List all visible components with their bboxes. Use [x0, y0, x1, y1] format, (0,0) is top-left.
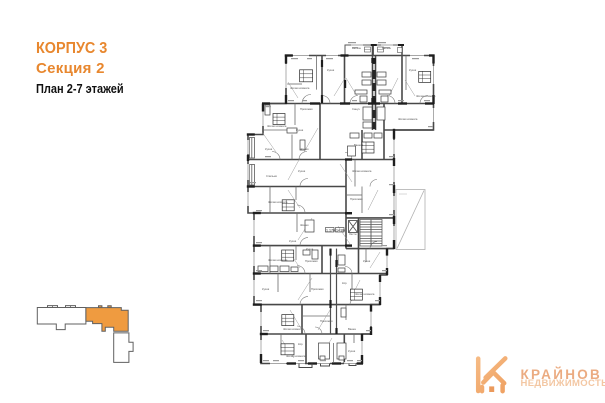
- svg-text:Прихожая: Прихожая: [320, 319, 333, 323]
- svg-text:Кухня: Кухня: [265, 147, 273, 151]
- svg-text:Жилая комната: Жилая комната: [290, 86, 310, 90]
- svg-text:Жилая: Жилая: [300, 147, 309, 151]
- svg-text:Жилая комната: Жилая комната: [398, 117, 418, 121]
- svg-text:Кухня: Кухня: [409, 68, 417, 72]
- svg-text:Кор.: Кор.: [342, 281, 348, 285]
- svg-text:Жилая комната: Жилая комната: [283, 327, 303, 331]
- svg-text:Прихожая: Прихожая: [300, 107, 313, 111]
- svg-text:Лестн.: Лестн.: [349, 232, 357, 236]
- svg-text:Кухня: Кухня: [298, 169, 306, 173]
- svg-text:Прихожая: Прихожая: [350, 197, 363, 201]
- svg-text:Кухня: Кухня: [348, 349, 356, 353]
- svg-text:1.176: 1.176: [326, 228, 335, 232]
- svg-text:Кухня: Кухня: [296, 128, 304, 132]
- svg-text:Кор.: Кор.: [298, 342, 304, 346]
- svg-text:Кухня: Кухня: [289, 239, 297, 243]
- svg-text:Жилая комната: Жилая комната: [268, 200, 288, 204]
- svg-text:Кухня: Кухня: [306, 247, 314, 251]
- svg-text:Жилая комната: Жилая комната: [416, 94, 436, 98]
- svg-text:Жилая комната: Жилая комната: [286, 354, 306, 358]
- svg-text:14.06: 14.06: [336, 228, 345, 232]
- svg-text:Ванна: Ванна: [348, 327, 356, 331]
- svg-text:Кухня: Кухня: [262, 287, 270, 291]
- svg-text:Жилая комната: Жилая комната: [352, 169, 372, 173]
- svg-text:Спальня: Спальня: [266, 174, 277, 178]
- svg-text:Ванная: Ванная: [354, 143, 364, 147]
- svg-text:Жилая: Жилая: [300, 223, 309, 227]
- svg-text:Кухня: Кухня: [327, 68, 335, 72]
- svg-text:Кухня: Кухня: [363, 259, 371, 263]
- svg-text:Жилая комната: Жилая комната: [267, 124, 287, 128]
- svg-text:Прихожая: Прихожая: [305, 259, 318, 263]
- svg-text:Сануз.: Сануз.: [352, 107, 361, 111]
- svg-text:Жилая комната: Жилая комната: [355, 292, 375, 296]
- svg-text:Прихожая: Прихожая: [311, 287, 324, 291]
- svg-text:Жилая комната: Жилая комната: [268, 258, 288, 262]
